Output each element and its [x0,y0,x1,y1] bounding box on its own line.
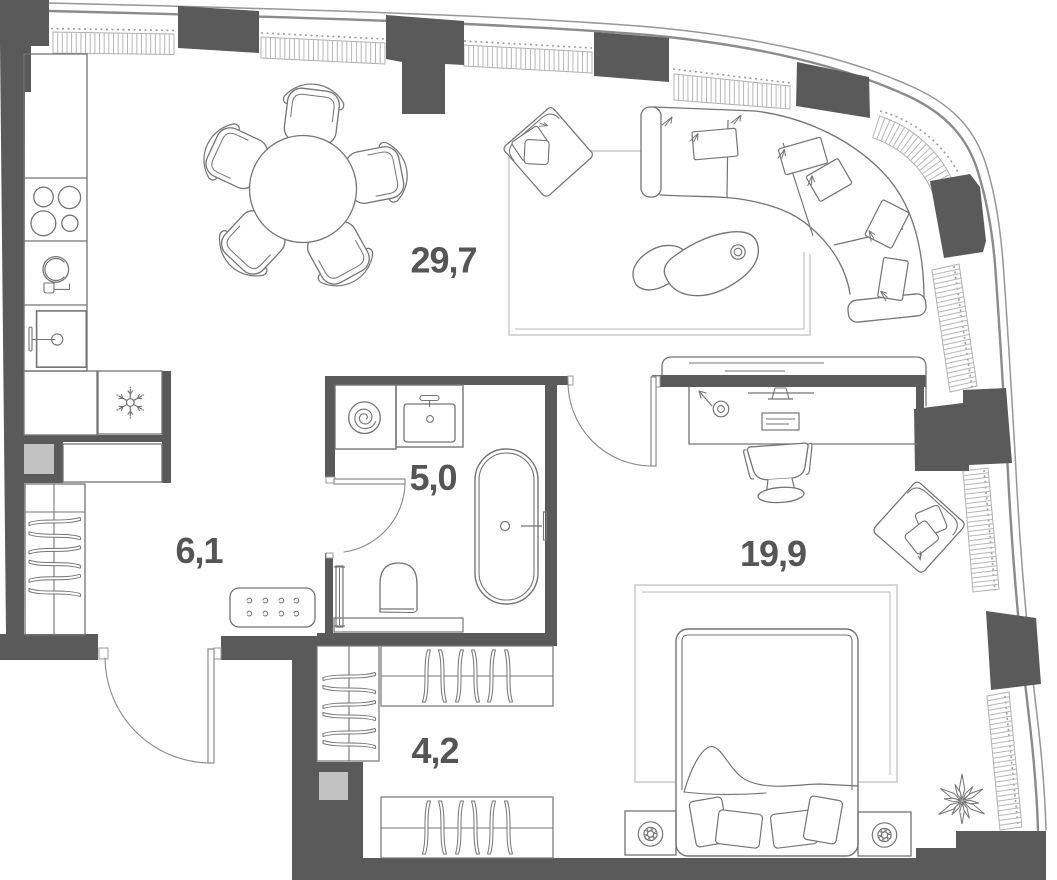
svg-text:6,1: 6,1 [175,530,223,571]
svg-text:4,2: 4,2 [411,730,458,771]
svg-text:29,7: 29,7 [410,240,476,281]
svg-text:5,0: 5,0 [409,457,456,498]
svg-text:19,9: 19,9 [740,533,806,574]
